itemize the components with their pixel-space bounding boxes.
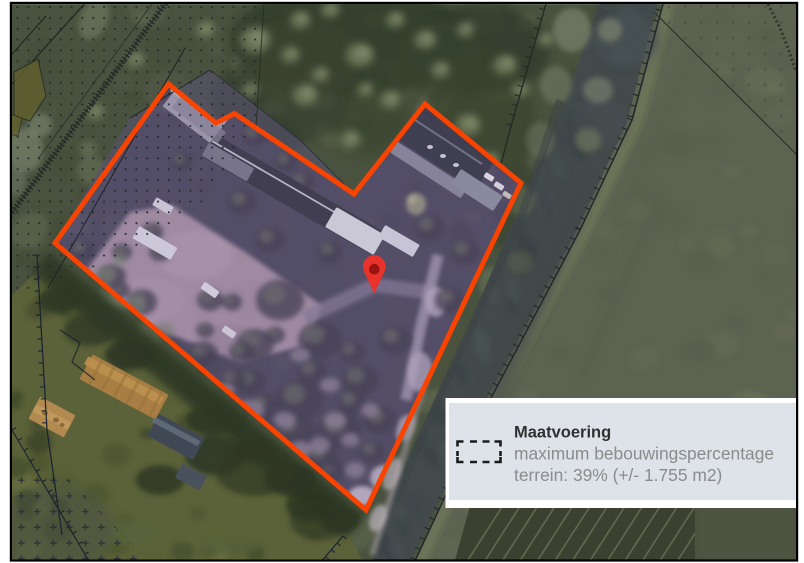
svg-text:maximum bebouwingspercentage: maximum bebouwingspercentage [514,444,774,464]
svg-text:Maatvoering: Maatvoering [514,424,611,442]
svg-text:terrein: 39% (+/- 1.755 m2): terrein: 39% (+/- 1.755 m2) [514,465,722,485]
